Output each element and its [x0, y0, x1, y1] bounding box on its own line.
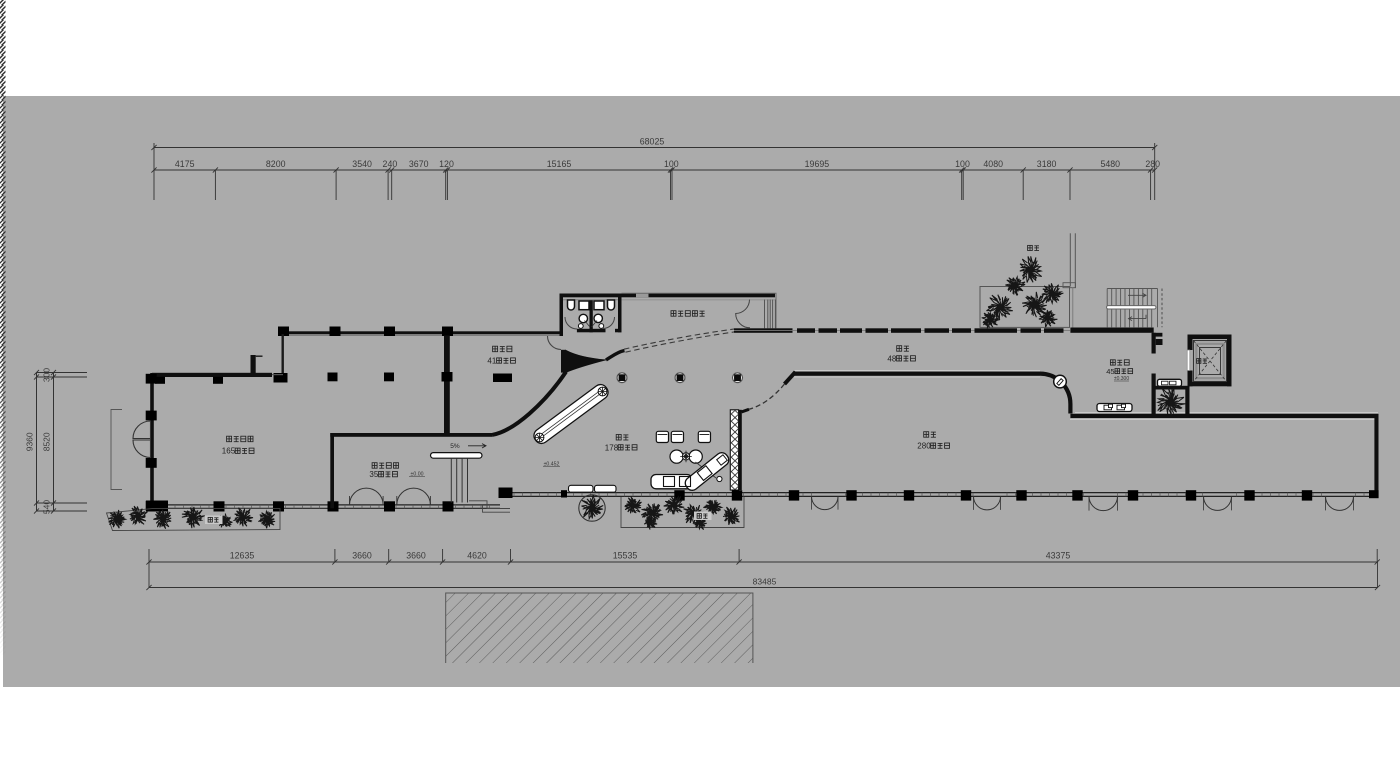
svg-text:12635: 12635: [230, 551, 255, 561]
svg-text:48: 48: [887, 354, 896, 363]
svg-text:540: 540: [42, 500, 52, 514]
svg-text:35: 35: [369, 470, 378, 479]
svg-text:9360: 9360: [25, 432, 35, 451]
svg-text:280: 280: [917, 442, 931, 451]
svg-text:4175: 4175: [175, 159, 195, 169]
svg-text:120: 120: [439, 159, 454, 169]
svg-text:15165: 15165: [547, 159, 572, 169]
svg-text:3180: 3180: [1037, 159, 1057, 169]
svg-text:5480: 5480: [1101, 159, 1121, 169]
svg-text:4620: 4620: [467, 551, 487, 561]
svg-text:178: 178: [605, 443, 619, 452]
svg-text:4080: 4080: [983, 159, 1003, 169]
svg-text:15535: 15535: [613, 551, 638, 561]
svg-text:3670: 3670: [409, 159, 429, 169]
svg-text:8200: 8200: [266, 159, 286, 169]
svg-text:19695: 19695: [805, 159, 830, 169]
svg-text:45: 45: [1106, 367, 1114, 376]
svg-text:3660: 3660: [352, 551, 372, 561]
svg-text:83485: 83485: [753, 576, 777, 586]
svg-text:3540: 3540: [352, 159, 372, 169]
svg-text:5%: 5%: [450, 443, 460, 450]
svg-text:68025: 68025: [640, 137, 665, 147]
svg-text:8520: 8520: [42, 432, 52, 451]
svg-text:3660: 3660: [406, 551, 426, 561]
svg-text:100: 100: [664, 159, 679, 169]
svg-text:43375: 43375: [1046, 551, 1071, 561]
svg-text:240: 240: [383, 159, 398, 169]
svg-text:300: 300: [42, 368, 52, 382]
svg-text:280: 280: [1145, 159, 1160, 169]
svg-text:165: 165: [222, 447, 236, 456]
svg-text:41: 41: [487, 357, 496, 366]
svg-text:100: 100: [955, 159, 970, 169]
